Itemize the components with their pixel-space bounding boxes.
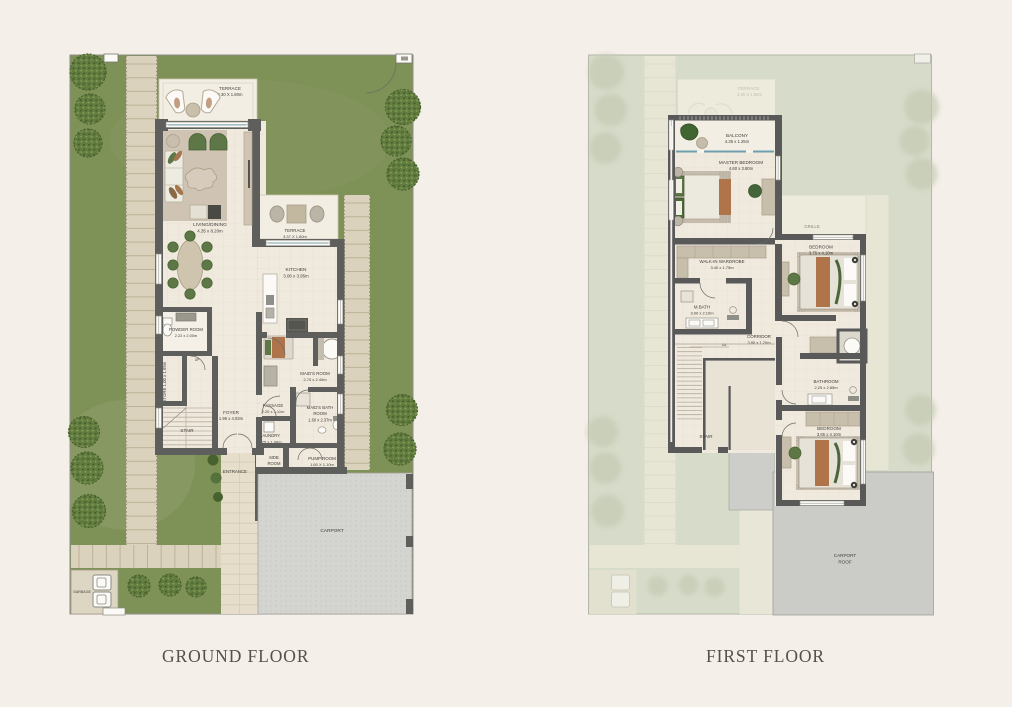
- svg-text:3.75 x 4.10m: 3.75 x 4.10m: [809, 251, 834, 256]
- svg-text:4.30 X 1.80m: 4.30 X 1.80m: [737, 92, 762, 97]
- svg-text:ROOM: ROOM: [267, 461, 281, 466]
- svg-text:1.60 x 2.37m: 1.60 x 2.37m: [308, 418, 332, 423]
- svg-text:1.95 x 4.03m: 1.95 x 4.03m: [219, 416, 244, 421]
- svg-text:MDB: MDB: [269, 455, 279, 460]
- svg-text:BEDROOM: BEDROOM: [809, 245, 833, 250]
- svg-text:STAIR: STAIR: [180, 428, 194, 433]
- svg-text:1.60 X 1.10m: 1.60 X 1.10m: [310, 462, 334, 467]
- svg-text:BEDROOM: BEDROOM: [817, 426, 841, 431]
- svg-text:4.35 x 1.25m: 4.35 x 1.25m: [725, 139, 750, 144]
- svg-text:CORRIDOR: CORRIDOR: [747, 334, 771, 339]
- svg-text:MASTER BEDROOM: MASTER BEDROOM: [719, 160, 763, 165]
- svg-text:2.25 x 2.85m: 2.25 x 2.85m: [814, 385, 838, 390]
- svg-text:LIVING/DINING: LIVING/DINING: [193, 222, 227, 228]
- svg-text:STAIR: STAIR: [699, 434, 713, 439]
- svg-text:FOYER: FOYER: [223, 410, 240, 415]
- svg-text:GARBAGE: GARBAGE: [73, 590, 91, 594]
- svg-text:BATHROOM: BATHROOM: [813, 379, 838, 384]
- svg-text:2.20 x 1.11m: 2.20 x 1.11m: [262, 409, 285, 414]
- svg-text:4.30 X 1.80m: 4.30 X 1.80m: [218, 92, 243, 97]
- svg-text:TERRACE: TERRACE: [738, 86, 760, 91]
- svg-text:M.BATH: M.BATH: [694, 305, 710, 310]
- svg-text:3.00 x 2.10m: 3.00 x 2.10m: [690, 311, 714, 316]
- svg-text:3.40 x 1.75m: 3.40 x 1.75m: [710, 265, 734, 270]
- svg-text:BALCONY: BALCONY: [726, 133, 748, 138]
- svg-text:DN: DN: [722, 343, 727, 347]
- svg-text:3.37 X 1.80m: 3.37 X 1.80m: [283, 234, 307, 239]
- svg-text:GRILLE: GRILLE: [804, 224, 820, 229]
- svg-text:MAID'S BATH: MAID'S BATH: [307, 405, 334, 410]
- svg-text:KITCHEN: KITCHEN: [285, 267, 307, 273]
- svg-text:LAUNDRY: LAUNDRY: [260, 433, 280, 438]
- svg-text:ROOM: ROOM: [313, 411, 327, 416]
- svg-text:CARPORT: CARPORT: [320, 528, 343, 534]
- svg-text:MAID'S ROOM: MAID'S ROOM: [300, 371, 330, 376]
- svg-text:CARPORT: CARPORT: [834, 553, 857, 558]
- svg-text:4.35 x 8.20m: 4.35 x 8.20m: [197, 229, 223, 234]
- svg-text:ROOF: ROOF: [838, 560, 851, 565]
- svg-text:WALK-IN WARDROBE: WALK-IN WARDROBE: [699, 259, 744, 264]
- svg-text:POWDER ROOM: POWDER ROOM: [169, 327, 203, 332]
- svg-text:TERRACE: TERRACE: [219, 86, 241, 91]
- svg-text:TERRACE: TERRACE: [285, 228, 306, 233]
- svg-text:4.60 x 3.80m: 4.60 x 3.80m: [729, 166, 754, 171]
- svg-text:2.22 x 2.00m: 2.22 x 2.00m: [175, 333, 198, 338]
- svg-text:ENTRANCE: ENTRANCE: [223, 469, 247, 474]
- svg-text:PASSAGE: PASSAGE: [263, 403, 284, 408]
- svg-text:3.06 x 3.95m: 3.06 x 3.95m: [283, 273, 309, 278]
- svg-text:2.70 x 2.40m: 2.70 x 2.40m: [303, 377, 327, 382]
